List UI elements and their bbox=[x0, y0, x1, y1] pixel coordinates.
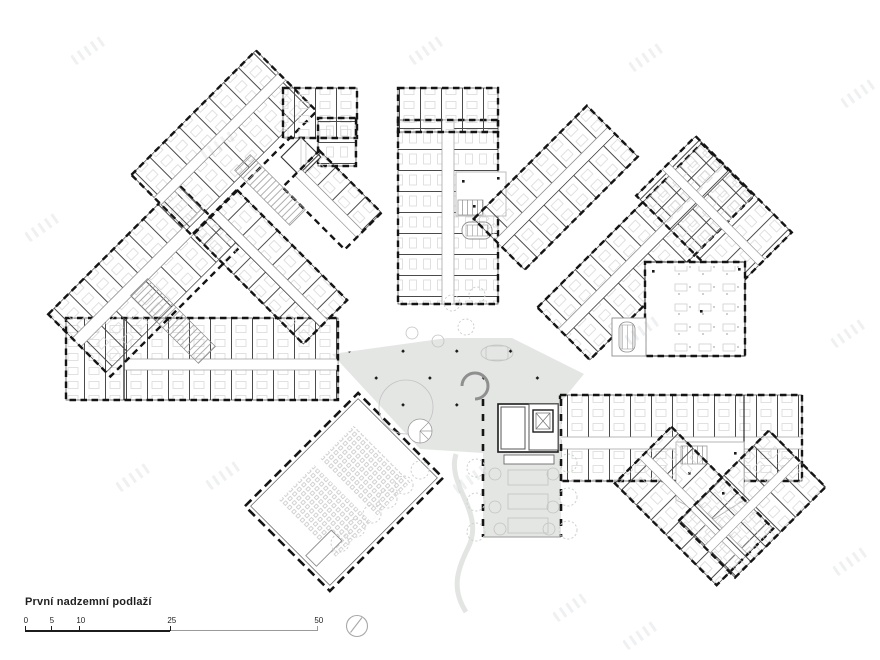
scale-bar: 0 5 10 25 50 bbox=[25, 616, 325, 638]
scale-tick bbox=[317, 626, 318, 631]
scale-tick bbox=[51, 626, 52, 631]
floor-plan-drawing bbox=[0, 0, 880, 660]
serving-counter bbox=[504, 455, 554, 464]
scale-segment-light bbox=[170, 630, 317, 631]
elevator-core bbox=[498, 404, 558, 452]
scale-tick bbox=[79, 626, 80, 631]
scale-label-50: 50 bbox=[314, 616, 323, 625]
wing-north bbox=[398, 88, 506, 304]
scale-label-0: 0 bbox=[24, 616, 28, 625]
page-title: První nadzemní podlaží bbox=[25, 596, 152, 608]
north-indicator-icon bbox=[347, 616, 368, 637]
scale-tick bbox=[25, 626, 26, 631]
scale-segment-dark bbox=[25, 630, 170, 632]
open-office bbox=[645, 262, 745, 356]
scale-tick bbox=[170, 626, 171, 631]
scale-label-10: 10 bbox=[76, 616, 85, 625]
scale-label-5: 5 bbox=[50, 616, 54, 625]
scale-label-25: 25 bbox=[167, 616, 176, 625]
